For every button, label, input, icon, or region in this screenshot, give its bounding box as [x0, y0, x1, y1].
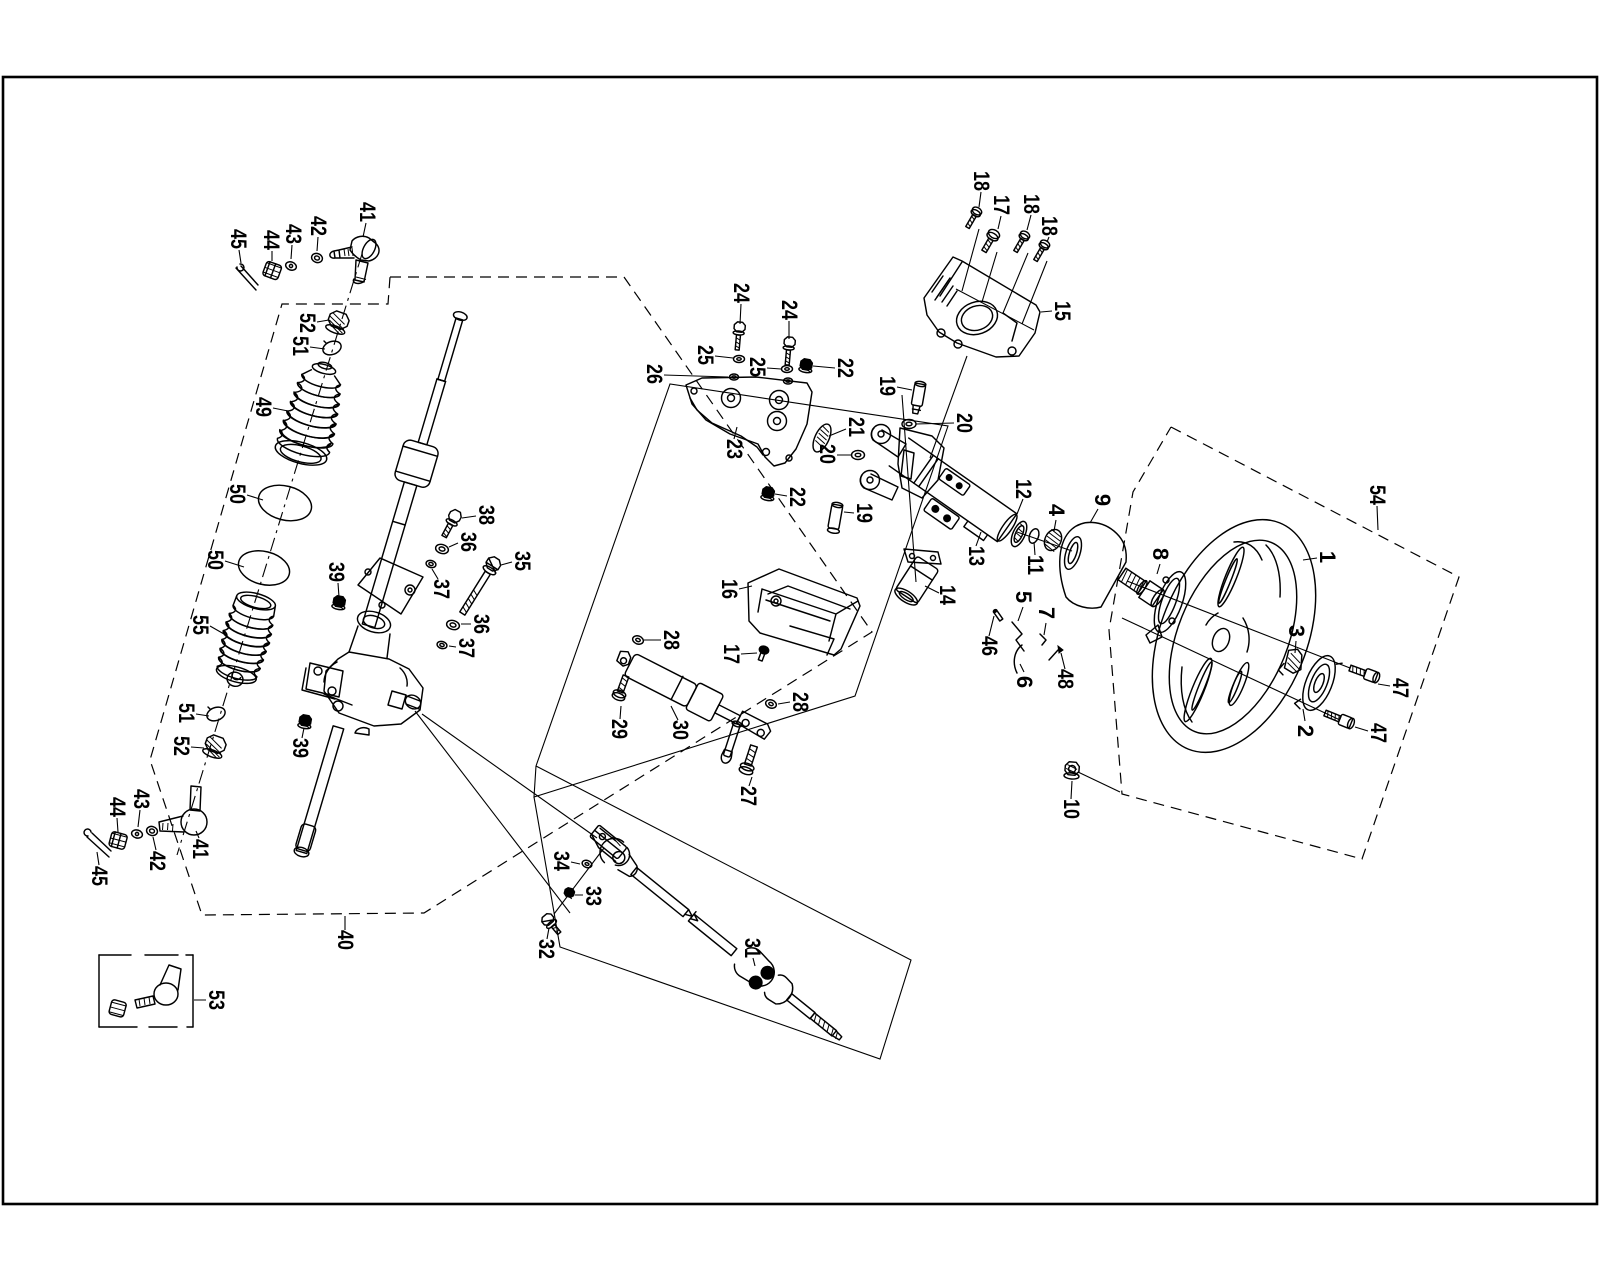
- svg-text:32: 32: [534, 939, 559, 959]
- svg-text:25: 25: [693, 345, 718, 365]
- svg-text:46: 46: [977, 636, 1002, 656]
- svg-text:28: 28: [659, 630, 684, 650]
- svg-text:18: 18: [1037, 216, 1062, 236]
- svg-text:51: 51: [288, 336, 313, 356]
- svg-text:40: 40: [333, 930, 358, 950]
- svg-text:41: 41: [188, 839, 213, 859]
- svg-text:27: 27: [736, 786, 761, 806]
- svg-text:2: 2: [1293, 725, 1318, 737]
- svg-text:19: 19: [852, 503, 877, 523]
- svg-text:44: 44: [105, 797, 130, 818]
- svg-text:28: 28: [788, 692, 813, 712]
- svg-text:24: 24: [777, 300, 802, 321]
- svg-text:38: 38: [474, 505, 499, 525]
- svg-text:52: 52: [295, 313, 320, 333]
- svg-text:23: 23: [722, 439, 747, 459]
- svg-text:54: 54: [1365, 485, 1390, 506]
- svg-text:47: 47: [1388, 678, 1413, 698]
- svg-text:31: 31: [740, 938, 765, 958]
- svg-text:29: 29: [607, 719, 632, 739]
- svg-text:13: 13: [964, 546, 989, 566]
- svg-text:25: 25: [745, 357, 770, 377]
- svg-text:4: 4: [1044, 504, 1069, 517]
- svg-text:52: 52: [169, 736, 194, 756]
- svg-text:44: 44: [259, 230, 284, 251]
- svg-text:34: 34: [549, 851, 574, 872]
- svg-text:37: 37: [454, 638, 479, 658]
- svg-text:16: 16: [717, 579, 742, 599]
- svg-text:45: 45: [226, 229, 251, 249]
- svg-text:33: 33: [581, 886, 606, 906]
- svg-text:15: 15: [1050, 301, 1075, 321]
- svg-text:21: 21: [844, 417, 869, 437]
- svg-text:22: 22: [833, 358, 858, 378]
- svg-text:17: 17: [989, 195, 1014, 215]
- svg-text:3: 3: [1284, 625, 1309, 637]
- svg-text:8: 8: [1148, 548, 1173, 560]
- svg-text:45: 45: [87, 866, 112, 886]
- svg-text:20: 20: [952, 413, 977, 433]
- svg-text:48: 48: [1053, 669, 1078, 689]
- svg-text:26: 26: [642, 364, 667, 384]
- svg-text:10: 10: [1059, 799, 1084, 819]
- svg-text:37: 37: [429, 579, 454, 599]
- svg-text:14: 14: [935, 585, 960, 606]
- svg-text:39: 39: [324, 562, 349, 582]
- svg-text:22: 22: [785, 487, 810, 507]
- svg-text:18: 18: [1019, 194, 1044, 214]
- svg-text:1: 1: [1315, 551, 1340, 563]
- svg-text:51: 51: [174, 703, 199, 723]
- svg-text:35: 35: [510, 551, 535, 571]
- svg-text:18: 18: [969, 171, 994, 191]
- svg-text:5: 5: [1011, 591, 1036, 603]
- svg-text:43: 43: [129, 789, 154, 809]
- svg-text:55: 55: [188, 615, 213, 635]
- svg-text:43: 43: [281, 224, 306, 244]
- svg-text:50: 50: [203, 550, 228, 570]
- svg-text:24: 24: [729, 283, 754, 304]
- svg-text:6: 6: [1012, 676, 1037, 688]
- svg-text:53: 53: [204, 990, 229, 1010]
- svg-text:19: 19: [875, 376, 900, 396]
- svg-text:42: 42: [306, 216, 331, 236]
- svg-text:30: 30: [668, 720, 693, 740]
- svg-text:47: 47: [1366, 723, 1391, 743]
- svg-text:36: 36: [456, 532, 481, 552]
- svg-text:17: 17: [719, 644, 744, 664]
- svg-text:49: 49: [251, 397, 276, 417]
- svg-text:42: 42: [145, 851, 170, 871]
- svg-text:11: 11: [1023, 555, 1048, 575]
- svg-text:20: 20: [815, 444, 840, 464]
- svg-text:36: 36: [469, 614, 494, 634]
- svg-text:7: 7: [1034, 607, 1059, 619]
- svg-text:39: 39: [288, 738, 313, 758]
- svg-text:12: 12: [1011, 479, 1036, 499]
- svg-text:9: 9: [1090, 494, 1115, 506]
- svg-text:50: 50: [225, 484, 250, 504]
- svg-text:41: 41: [355, 202, 380, 222]
